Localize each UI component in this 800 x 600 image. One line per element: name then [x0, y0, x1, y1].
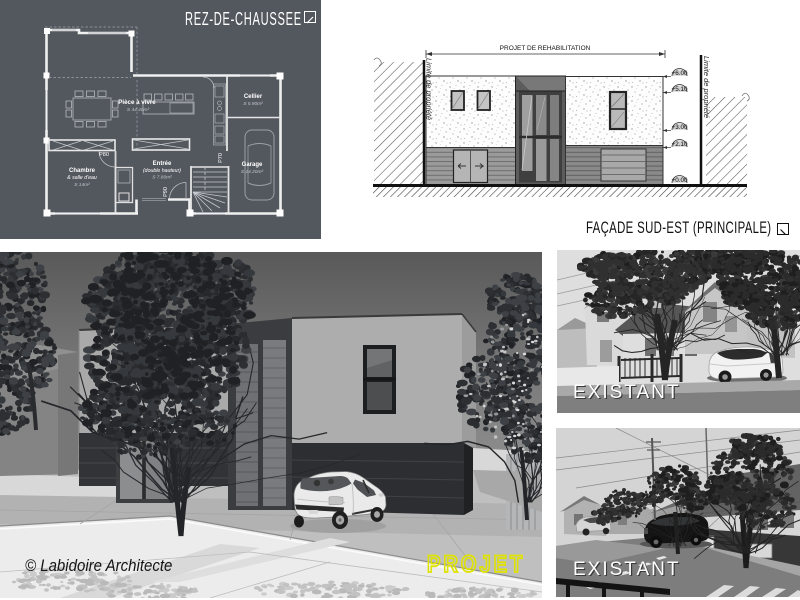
svg-text:+3.00: +3.00 — [672, 124, 688, 131]
svg-text:+6.00: +6.00 — [672, 70, 688, 77]
svg-text:PROJET DE REHABILITATION: PROJET DE REHABILITATION — [500, 45, 591, 52]
svg-text:Limite de propriété: Limite de propriété — [425, 58, 434, 120]
svg-text:EXISTANT: EXISTANT — [573, 559, 681, 580]
svg-text:EXISTANT: EXISTANT — [573, 382, 681, 403]
svg-text:+2.10: +2.10 — [672, 141, 688, 148]
svg-text:+0.00: +0.00 — [672, 177, 688, 184]
svg-text:+5.10: +5.10 — [672, 86, 688, 93]
svg-text:Limite de propriété: Limite de propriété — [702, 56, 711, 118]
